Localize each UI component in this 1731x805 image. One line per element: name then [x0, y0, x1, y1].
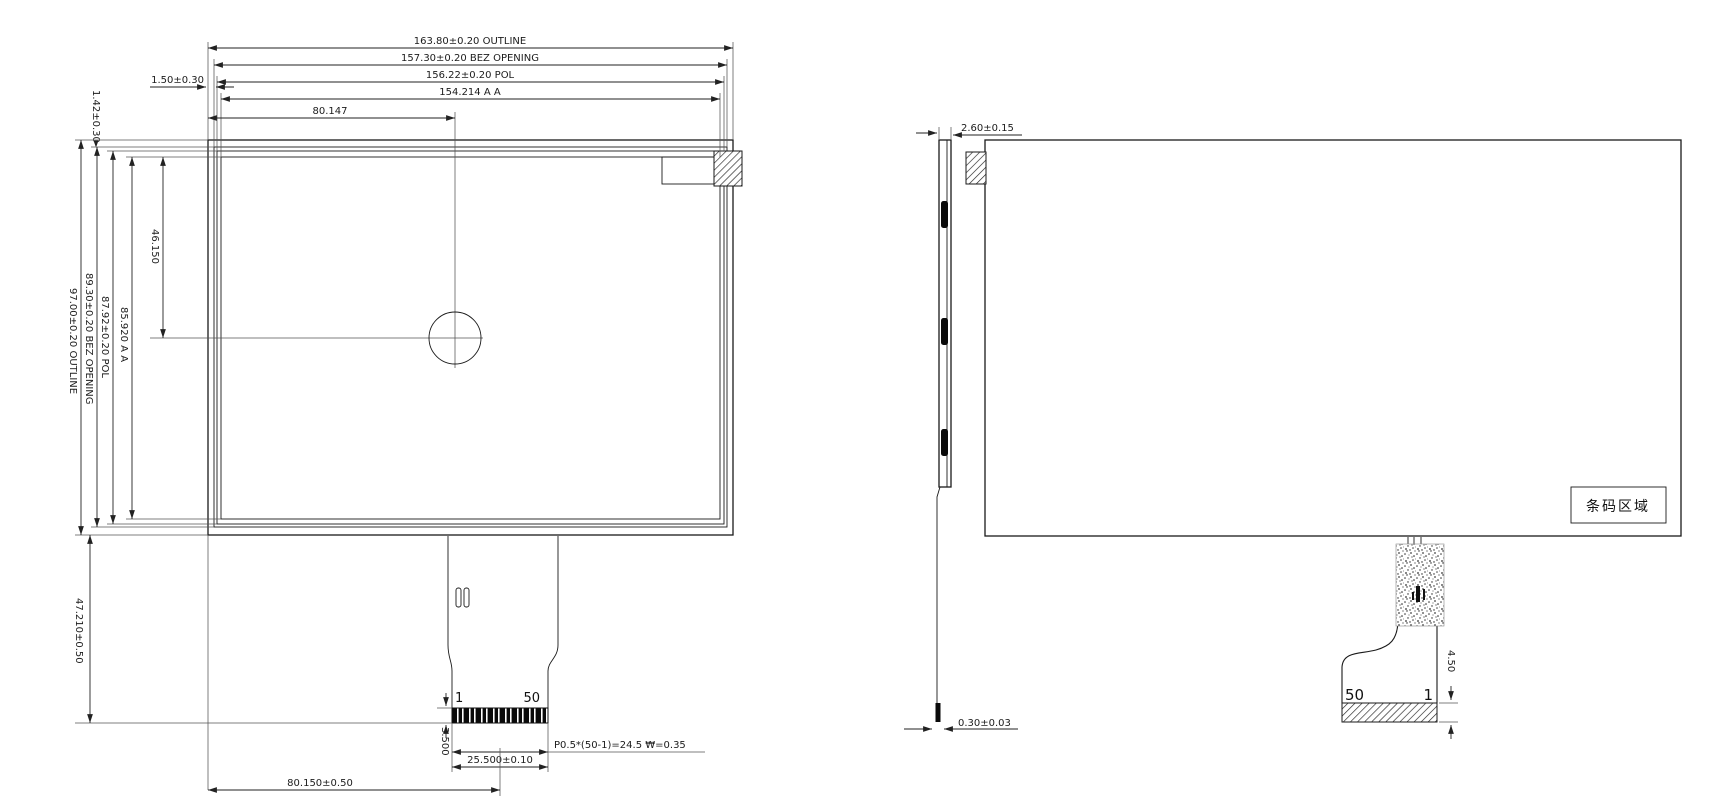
front-hatched-tab	[714, 151, 742, 186]
rear-outline-rect	[985, 140, 1681, 536]
dim-outline-height: 97.00±0.20 OUTLINE	[67, 288, 78, 394]
drawing-sheet: 1 50 163.80±0.20 OUTLINE 157.30±0.20 BEZ…	[0, 0, 1731, 805]
dim-fpc-length: 47.210±0.50	[73, 598, 84, 664]
front-bottom-dimensions: 3.500 P0.5*(50-1)=24.5 ₩=0.35 25.500±0.1…	[208, 535, 705, 796]
rear-pin50-label: 50	[1345, 686, 1364, 704]
dim-bezel-height: 89.30±0.20 BEZ OPENING	[83, 273, 94, 405]
front-bezel-opening-rect	[214, 147, 727, 527]
front-pin1-label: 1	[455, 691, 463, 706]
dim-pin-pitch: P0.5*(50-1)=24.5 ₩=0.35	[554, 740, 686, 751]
dim-stiffener-height: 4.50	[1445, 650, 1456, 672]
dim-aa-height: 85.920 A A	[118, 307, 129, 362]
sticker-barcode-mark	[1416, 586, 1420, 602]
dim-bezel-inset-top-arrow	[94, 141, 99, 148]
rear-hatched-tab	[966, 152, 986, 184]
dim-contact-height: 3.500	[439, 727, 450, 756]
lcd-outline-drawing: 1 50 163.80±0.20 OUTLINE 157.30±0.20 BEZ…	[0, 0, 1731, 805]
side-clip-top	[941, 201, 948, 228]
rear-pin1-label: 1	[1423, 686, 1433, 704]
side-clip-bottom	[941, 429, 948, 456]
side-fpc-line	[937, 487, 940, 703]
dim-pol-width: 156.22±0.20 POL	[426, 70, 515, 81]
dim-aa-width: 154.214 A A	[439, 87, 501, 98]
side-view: 2.60±0.15 0.30±0.03	[904, 123, 1022, 729]
fpc-slot-right	[464, 588, 469, 607]
front-polarizer-rect	[217, 151, 724, 524]
front-outline-rect	[208, 140, 733, 535]
fpc-tail-right-edge	[548, 536, 558, 708]
dim-center-y: 46.150	[149, 229, 160, 264]
front-left-dimensions: 97.00±0.20 OUTLINE 89.30±0.20 BEZ OPENIN…	[67, 140, 452, 723]
dim-bezel-width: 157.30±0.20 BEZ OPENING	[401, 53, 539, 64]
side-fpc-tip	[936, 703, 941, 722]
dim-outline-width: 163.80±0.20 OUTLINE	[414, 36, 526, 47]
dim-fpc-thickness: 0.30±0.03	[958, 718, 1011, 729]
dim-bezel-inset-left: 1.50±0.30	[151, 75, 204, 86]
fpc-tail-left-edge	[448, 536, 452, 708]
dim-connector-center: 80.150±0.50	[287, 778, 353, 789]
front-view: 1 50	[150, 112, 742, 723]
rear-view: 条码区域 50 1 4.50	[966, 140, 1681, 739]
fpc-slot-left	[456, 588, 461, 607]
side-clip-middle	[941, 318, 948, 345]
front-label-box	[662, 157, 714, 184]
front-pin50-label: 50	[523, 691, 540, 706]
fpc-contact-band	[452, 708, 548, 723]
front-top-dimensions: 163.80±0.20 OUTLINE 157.30±0.20 BEZ OPEN…	[90, 36, 733, 157]
barcode-area-label: 条码区域	[1586, 498, 1650, 515]
dim-thickness: 2.60±0.15	[961, 123, 1014, 134]
dim-center-x: 80.147	[313, 106, 348, 117]
rear-stiffener-strip	[1342, 703, 1437, 722]
serial-sticker	[1396, 544, 1444, 626]
dim-bezel-inset-top: 1.42±0.30	[90, 90, 101, 143]
dim-pol-height: 87.92±0.20 POL	[99, 296, 110, 378]
